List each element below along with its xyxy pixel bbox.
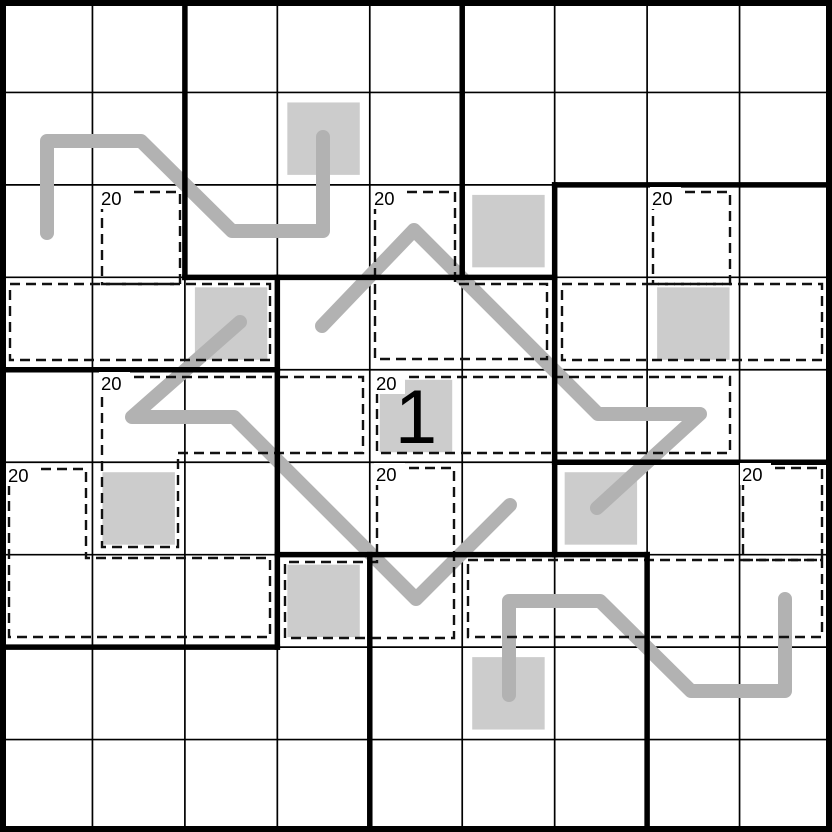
shaded-cell-r6c3 [287,565,359,637]
cell-r1c5[interactable] [462,92,554,184]
cell-r0c3[interactable] [277,0,369,92]
cage-total-label: 20 [376,464,397,485]
cell-r4c0[interactable] [0,370,92,462]
cell-r8c1[interactable] [92,740,184,832]
cell-r0c4[interactable] [370,0,462,92]
cell-r7c0[interactable] [0,647,92,739]
cell-r5c2[interactable] [185,462,277,554]
cell-r0c6[interactable] [555,0,647,92]
cell-r1c8[interactable] [740,92,832,184]
cell-r1c6[interactable] [555,92,647,184]
cell-r1c7[interactable] [647,92,739,184]
cell-r8c0[interactable] [0,740,92,832]
cell-r8c5[interactable] [462,740,554,832]
cell-r8c6[interactable] [555,740,647,832]
cage-total-label: 20 [742,464,763,485]
cage-total-label: 20 [374,188,395,209]
cell-r8c4[interactable] [370,740,462,832]
shaded-cell-r5c1 [102,472,174,544]
cage-total-label: 20 [652,188,673,209]
cell-r6c1[interactable] [92,555,184,647]
cell-r4c8[interactable] [740,370,832,462]
cage-total-label: 20 [101,188,122,209]
cell-r6c2[interactable] [185,555,277,647]
cell-r0c7[interactable] [647,0,739,92]
cell-r3c6[interactable] [555,277,647,369]
cell-r2c6[interactable] [555,185,647,277]
cell-r8c3[interactable] [277,740,369,832]
cell-r3c0[interactable] [0,277,92,369]
puzzle-page: 20202020202020201 [0,0,832,832]
cell-r0c8[interactable] [740,0,832,92]
cage-total-label: 20 [101,373,122,394]
cell-r2c8[interactable] [740,185,832,277]
cell-r5c7[interactable] [647,462,739,554]
cell-r7c6[interactable] [555,647,647,739]
sudoku-grid[interactable]: 20202020202020201 [0,0,832,832]
cell-r8c8[interactable] [740,740,832,832]
given-digit: 1 [395,375,437,460]
cell-r0c2[interactable] [185,0,277,92]
cell-r1c2[interactable] [185,92,277,184]
cell-r3c1[interactable] [92,277,184,369]
cell-r7c4[interactable] [370,647,462,739]
cell-r7c3[interactable] [277,647,369,739]
cell-r7c1[interactable] [92,647,184,739]
cell-r3c8[interactable] [740,277,832,369]
cell-r0c1[interactable] [92,0,184,92]
cell-r4c5[interactable] [462,370,554,462]
cage-total-label: 20 [8,465,29,486]
cell-r1c4[interactable] [370,92,462,184]
shaded-cell-r2c5 [472,195,544,267]
cell-r0c0[interactable] [0,0,92,92]
cell-r0c5[interactable] [462,0,554,92]
shaded-cell-r3c7 [657,287,729,359]
cage-total-label: 20 [376,373,397,394]
cell-r7c2[interactable] [185,647,277,739]
cell-r8c2[interactable] [185,740,277,832]
cell-r6c7[interactable] [647,555,739,647]
cell-r8c7[interactable] [647,740,739,832]
cell-r3c4[interactable] [370,277,462,369]
cell-r4c3[interactable] [277,370,369,462]
cell-r6c0[interactable] [0,555,92,647]
